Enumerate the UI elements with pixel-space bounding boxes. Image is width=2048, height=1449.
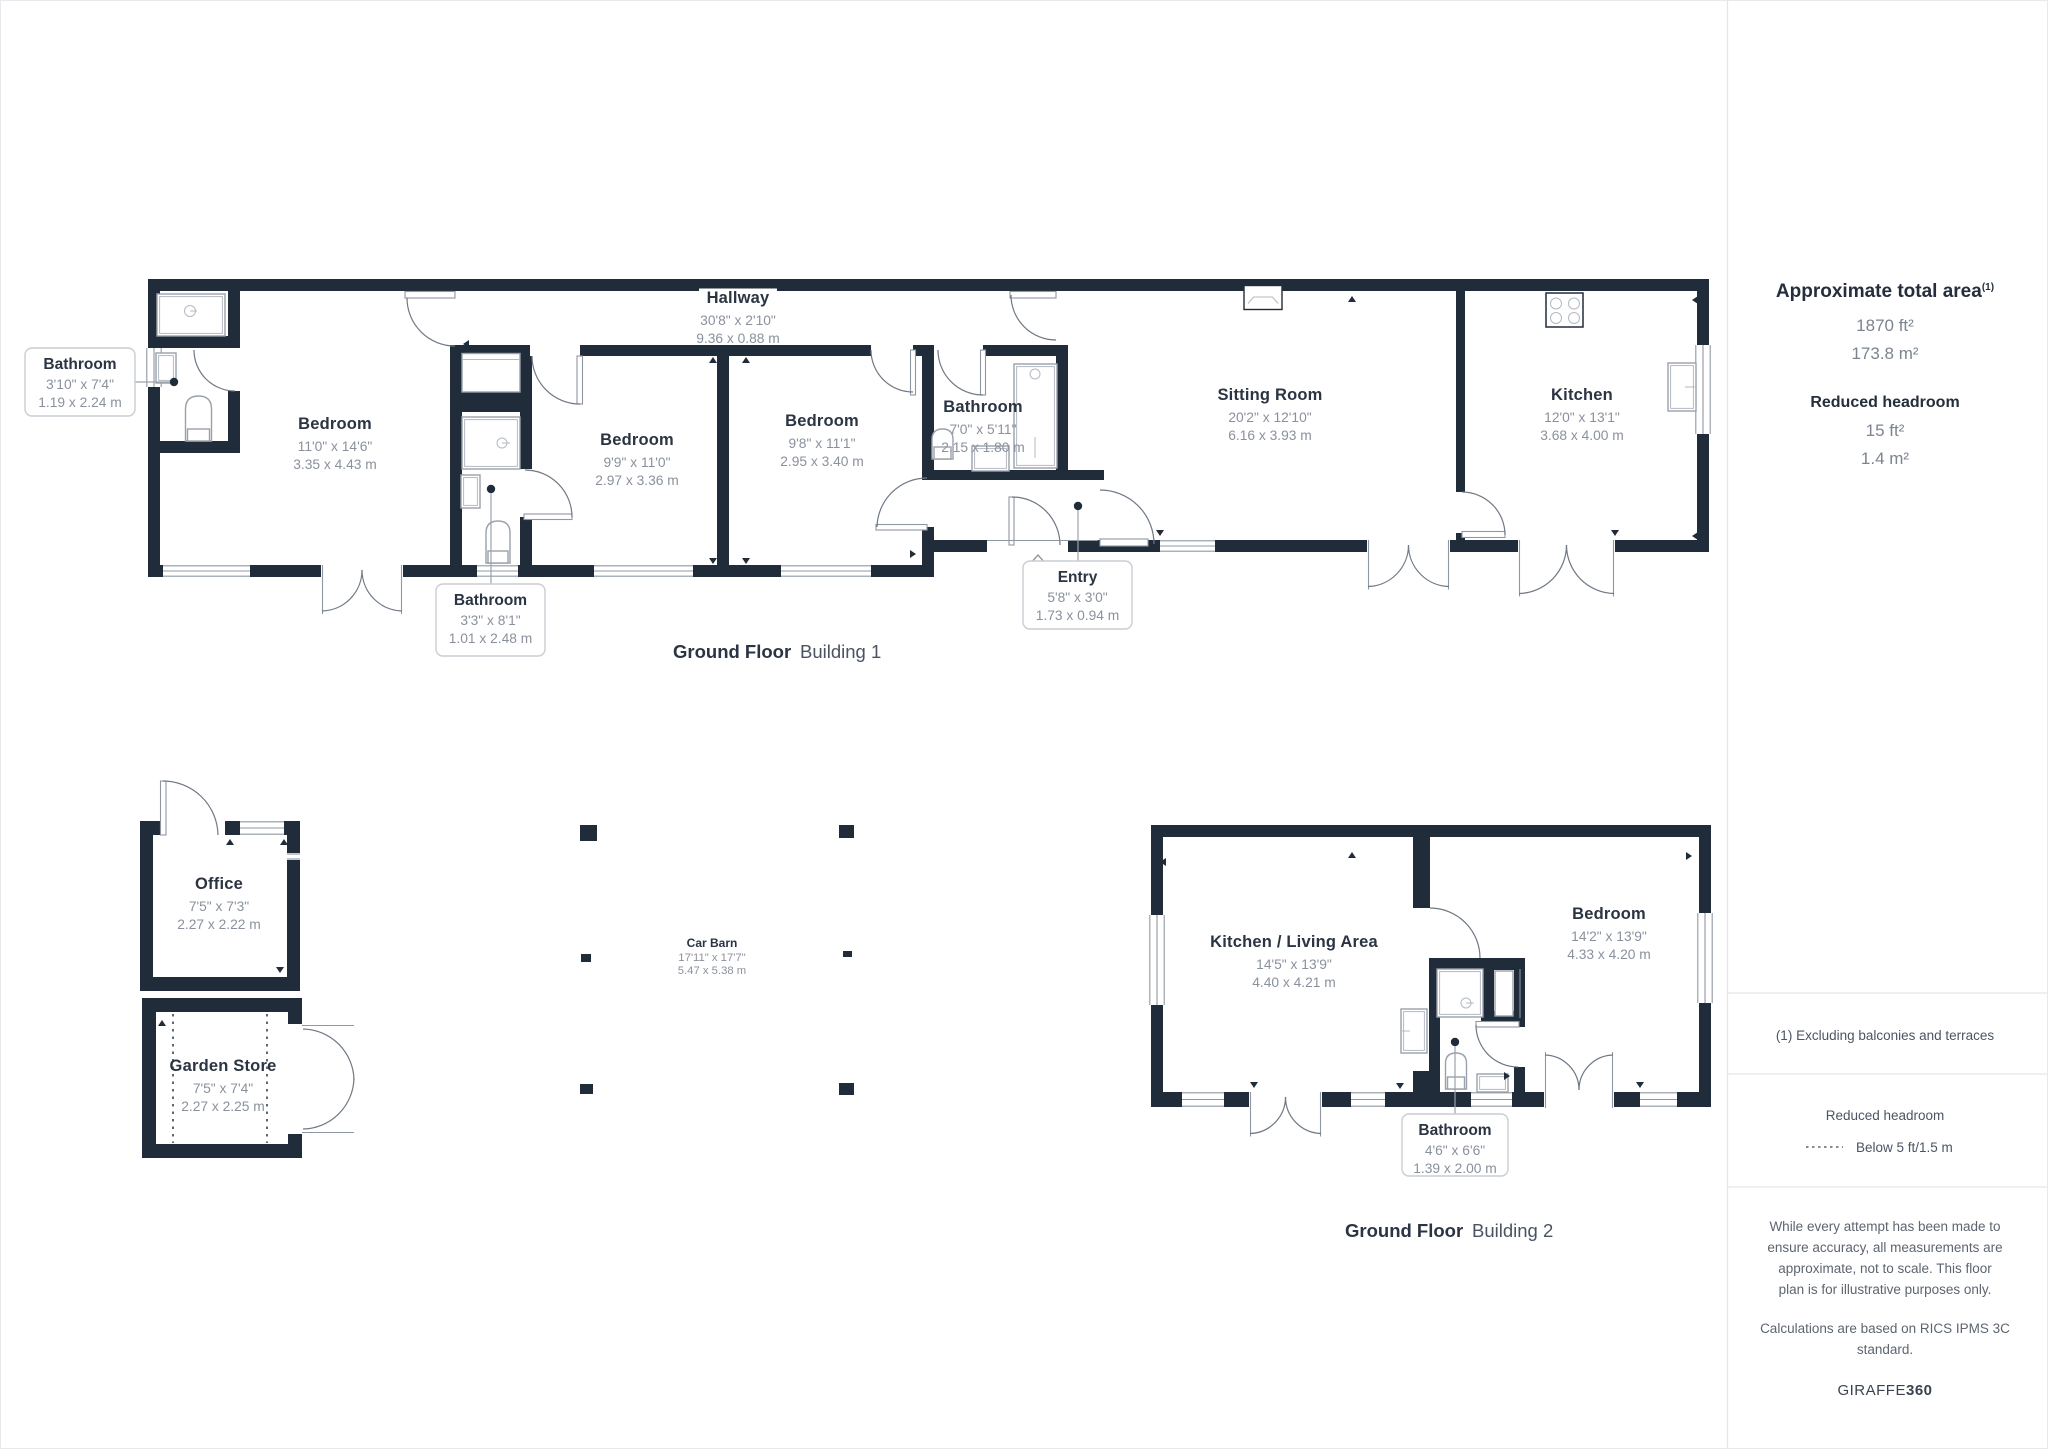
svg-text:Bathroom: Bathroom	[43, 356, 116, 373]
svg-text:3.68 x 4.00 m: 3.68 x 4.00 m	[1540, 428, 1624, 443]
svg-text:14'2" x 13'9": 14'2" x 13'9"	[1571, 929, 1647, 944]
svg-text:While every attempt has been m: While every attempt has been made to	[1769, 1219, 2000, 1234]
svg-text:4.33 x 4.20 m: 4.33 x 4.20 m	[1567, 947, 1651, 962]
svg-text:9'8" x 11'1": 9'8" x 11'1"	[789, 436, 856, 451]
svg-text:ensure accuracy, all measureme: ensure accuracy, all measurements are	[1767, 1240, 2002, 1255]
svg-text:6.16 x 3.93 m: 6.16 x 3.93 m	[1228, 428, 1312, 443]
svg-text:7'5" x 7'3": 7'5" x 7'3"	[189, 899, 249, 914]
svg-text:30'8" x 2'10": 30'8" x 2'10"	[700, 313, 776, 328]
svg-text:2.27 x 2.22 m: 2.27 x 2.22 m	[177, 917, 261, 932]
svg-text:5.47 x 5.38 m: 5.47 x 5.38 m	[678, 965, 746, 977]
svg-text:Building 1: Building 1	[800, 641, 881, 662]
svg-text:Sitting Room: Sitting Room	[1217, 386, 1322, 404]
svg-text:Ground Floor: Ground Floor	[673, 641, 791, 662]
svg-text:5'8" x 3'0": 5'8" x 3'0"	[1047, 590, 1107, 605]
svg-text:7'0" x 5'11": 7'0" x 5'11"	[950, 422, 1017, 437]
svg-text:1.4 m²: 1.4 m²	[1861, 449, 1910, 468]
svg-text:1.73 x 0.94 m: 1.73 x 0.94 m	[1036, 608, 1120, 623]
svg-text:Building 2: Building 2	[1472, 1220, 1553, 1241]
svg-text:Bedroom: Bedroom	[1572, 905, 1646, 923]
svg-text:GIRAFFE360: GIRAFFE360	[1837, 1382, 1932, 1399]
svg-text:Bathroom: Bathroom	[943, 398, 1023, 416]
svg-text:4'6" x 6'6": 4'6" x 6'6"	[1425, 1143, 1485, 1158]
svg-text:3'3" x 8'1": 3'3" x 8'1"	[460, 613, 520, 628]
svg-text:17'11" x 17'7": 17'11" x 17'7"	[678, 952, 745, 964]
svg-text:1.19 x 2.24 m: 1.19 x 2.24 m	[38, 395, 122, 410]
svg-text:Below 5 ft/1.5 m: Below 5 ft/1.5 m	[1856, 1140, 1953, 1155]
svg-text:Calculations are based on RICS: Calculations are based on RICS IPMS 3C	[1760, 1321, 2010, 1336]
svg-text:standard.: standard.	[1857, 1342, 1913, 1357]
svg-text:Office: Office	[195, 875, 243, 893]
svg-text:Kitchen: Kitchen	[1551, 386, 1613, 404]
svg-text:Bathroom: Bathroom	[454, 592, 527, 609]
svg-text:Bedroom: Bedroom	[600, 431, 674, 449]
svg-text:1870 ft²: 1870 ft²	[1856, 316, 1914, 335]
svg-text:11'0" x 14'6": 11'0" x 14'6"	[298, 439, 373, 454]
svg-text:1.39 x 2.00 m: 1.39 x 2.00 m	[1413, 1161, 1497, 1176]
svg-text:Ground Floor: Ground Floor	[1345, 1220, 1463, 1241]
svg-text:3'10" x 7'4": 3'10" x 7'4"	[46, 377, 114, 392]
svg-text:12'0" x 13'1": 12'0" x 13'1"	[1544, 410, 1620, 425]
svg-text:Bathroom: Bathroom	[1418, 1122, 1491, 1139]
svg-text:Garden Store: Garden Store	[170, 1057, 277, 1075]
svg-text:Kitchen / Living Area: Kitchen / Living Area	[1210, 933, 1378, 951]
svg-text:2.97 x 3.36 m: 2.97 x 3.36 m	[595, 473, 679, 488]
svg-text:Bedroom: Bedroom	[785, 412, 859, 430]
svg-text:15 ft²: 15 ft²	[1866, 421, 1905, 440]
svg-text:2.27 x 2.25 m: 2.27 x 2.25 m	[181, 1099, 265, 1114]
svg-text:Bedroom: Bedroom	[298, 415, 372, 433]
svg-text:14'5" x 13'9": 14'5" x 13'9"	[1256, 957, 1332, 972]
svg-text:4.40 x 4.21 m: 4.40 x 4.21 m	[1252, 975, 1336, 990]
svg-text:1.01 x 2.48 m: 1.01 x 2.48 m	[449, 631, 533, 646]
svg-text:9'9" x 11'0": 9'9" x 11'0"	[604, 455, 671, 470]
svg-text:Reduced headroom: Reduced headroom	[1810, 394, 1959, 411]
svg-text:plan is for illustrative purpo: plan is for illustrative purposes only.	[1779, 1282, 1992, 1297]
svg-text:7'5" x 7'4": 7'5" x 7'4"	[193, 1081, 253, 1096]
svg-text:9.36 x 0.88 m: 9.36 x 0.88 m	[696, 331, 780, 346]
svg-text:3.35 x 4.43 m: 3.35 x 4.43 m	[293, 457, 377, 472]
svg-text:Car Barn: Car Barn	[687, 936, 738, 950]
svg-text:2.95 x 3.40 m: 2.95 x 3.40 m	[780, 454, 864, 469]
svg-text:Reduced headroom: Reduced headroom	[1826, 1108, 1945, 1123]
svg-text:approximate, not to scale. Thi: approximate, not to scale. This floor	[1778, 1261, 1992, 1276]
svg-text:Hallway: Hallway	[707, 289, 770, 307]
svg-text:20'2" x 12'10": 20'2" x 12'10"	[1228, 410, 1311, 425]
svg-text:2.15 x 1.80 m: 2.15 x 1.80 m	[941, 440, 1025, 455]
svg-text:Entry: Entry	[1058, 569, 1098, 586]
svg-text:(1) Excluding balconies and te: (1) Excluding balconies and terraces	[1776, 1028, 1995, 1043]
svg-text:173.8 m²: 173.8 m²	[1851, 344, 1918, 363]
svg-text:Approximate total area(1): Approximate total area(1)	[1776, 281, 1994, 302]
